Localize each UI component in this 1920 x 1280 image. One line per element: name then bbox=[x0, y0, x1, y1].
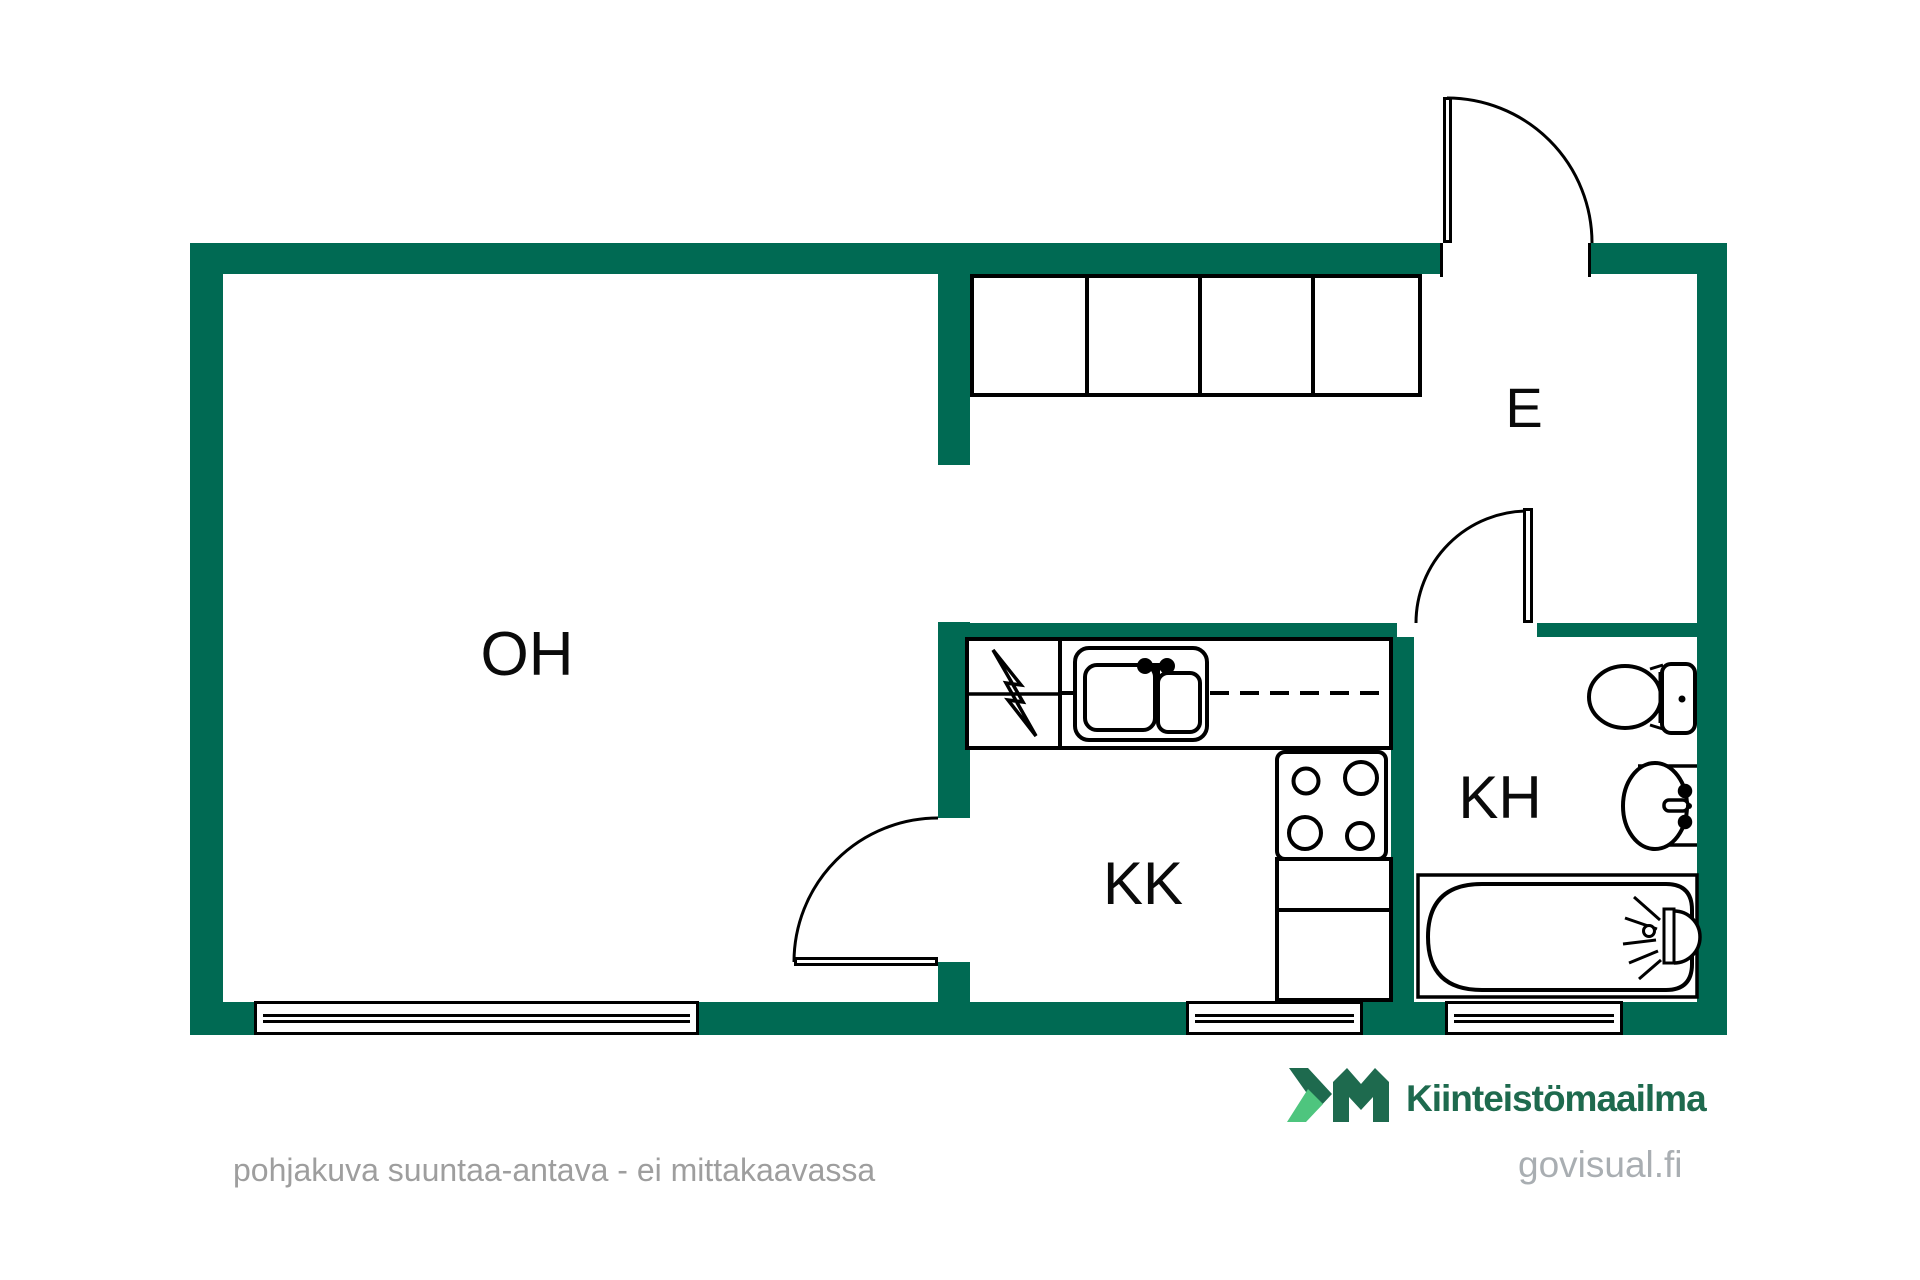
toilet bbox=[1589, 664, 1695, 733]
room-label-kh: KH bbox=[1458, 768, 1541, 828]
bathroom-door-leaf bbox=[1523, 508, 1533, 623]
room-label-oh: OH bbox=[481, 624, 574, 686]
kitchen-door-leaf bbox=[794, 957, 938, 966]
watermark-text: govisual.fi bbox=[1518, 1144, 1683, 1186]
room-label-e: E bbox=[1505, 380, 1542, 436]
bathtub bbox=[1418, 875, 1700, 997]
floor-plan: OH KK KH E pohjakuva suuntaa-antava - ei… bbox=[0, 0, 1920, 1280]
kitchen-sink bbox=[1075, 648, 1207, 740]
brand-name: Kiinteistömaailma bbox=[1406, 1078, 1706, 1120]
base-cabinet bbox=[1277, 859, 1391, 1000]
logo-m-shape bbox=[1333, 1068, 1389, 1122]
room-label-kk: KK bbox=[1103, 854, 1183, 914]
entrance-door-arc bbox=[1447, 98, 1592, 243]
bathroom-door-arc bbox=[1416, 511, 1528, 623]
stove bbox=[1277, 752, 1386, 859]
bathroom-sink bbox=[1623, 763, 1697, 849]
entrance-door-leaf bbox=[1443, 97, 1452, 243]
disclaimer-text: pohjakuva suuntaa-antava - ei mittakaava… bbox=[233, 1152, 875, 1189]
km-logo-mark bbox=[1287, 1068, 1397, 1122]
kitchen-door-arc bbox=[794, 818, 938, 962]
